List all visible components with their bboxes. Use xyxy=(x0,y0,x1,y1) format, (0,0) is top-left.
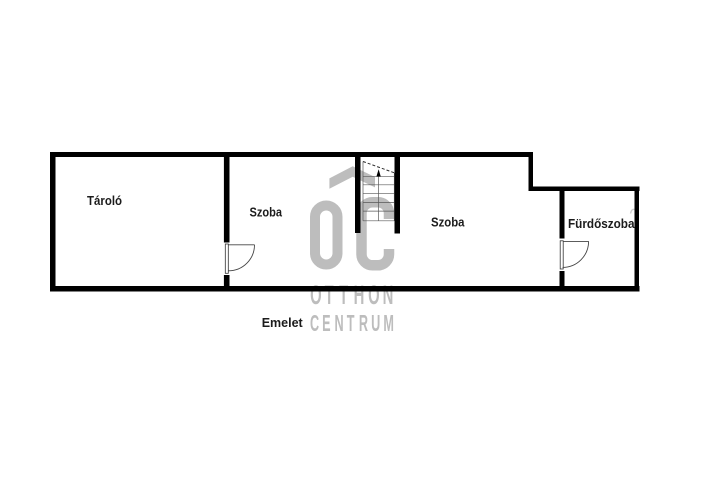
svg-text:Szoba: Szoba xyxy=(250,205,283,220)
svg-text:Emelet: Emelet xyxy=(262,315,304,330)
svg-text:Fürdőszoba: Fürdőszoba xyxy=(568,216,635,231)
svg-text:Szoba: Szoba xyxy=(431,214,465,229)
svg-text:Tároló: Tároló xyxy=(87,193,122,208)
